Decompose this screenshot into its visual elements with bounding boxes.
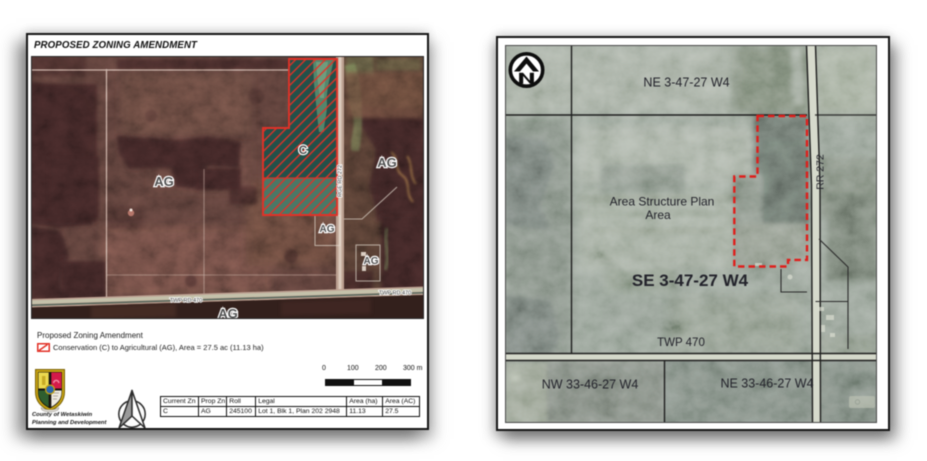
svg-text:AG: AG [218, 306, 238, 319]
svg-text:AG: AG [320, 224, 335, 235]
svg-text:AG: AG [364, 256, 379, 267]
svg-text:AG: AG [377, 155, 397, 170]
svg-text:C: C [299, 143, 308, 157]
svg-text:NE 3-47-27 W4: NE 3-47-27 W4 [643, 76, 729, 90]
svg-text:SE 3-47-27 W4: SE 3-47-27 W4 [632, 271, 749, 290]
svg-text:NE 33-46-27 W4: NE 33-46-27 W4 [720, 377, 813, 391]
svg-text:AG: AG [154, 174, 174, 189]
svg-text:TWP RD 470: TWP RD 470 [379, 291, 411, 297]
svg-text:RGE RD 272: RGE RD 272 [338, 165, 344, 197]
svg-text:TWP RD 470: TWP RD 470 [170, 298, 202, 304]
svg-text:Area Structure Plan: Area Structure Plan [610, 195, 715, 209]
svg-text:Area: Area [645, 208, 671, 222]
svg-text:NW 33-46-27 W4: NW 33-46-27 W4 [542, 378, 639, 392]
svg-text:TWP 470: TWP 470 [657, 337, 705, 349]
svg-text:RR 272: RR 272 [815, 154, 827, 190]
